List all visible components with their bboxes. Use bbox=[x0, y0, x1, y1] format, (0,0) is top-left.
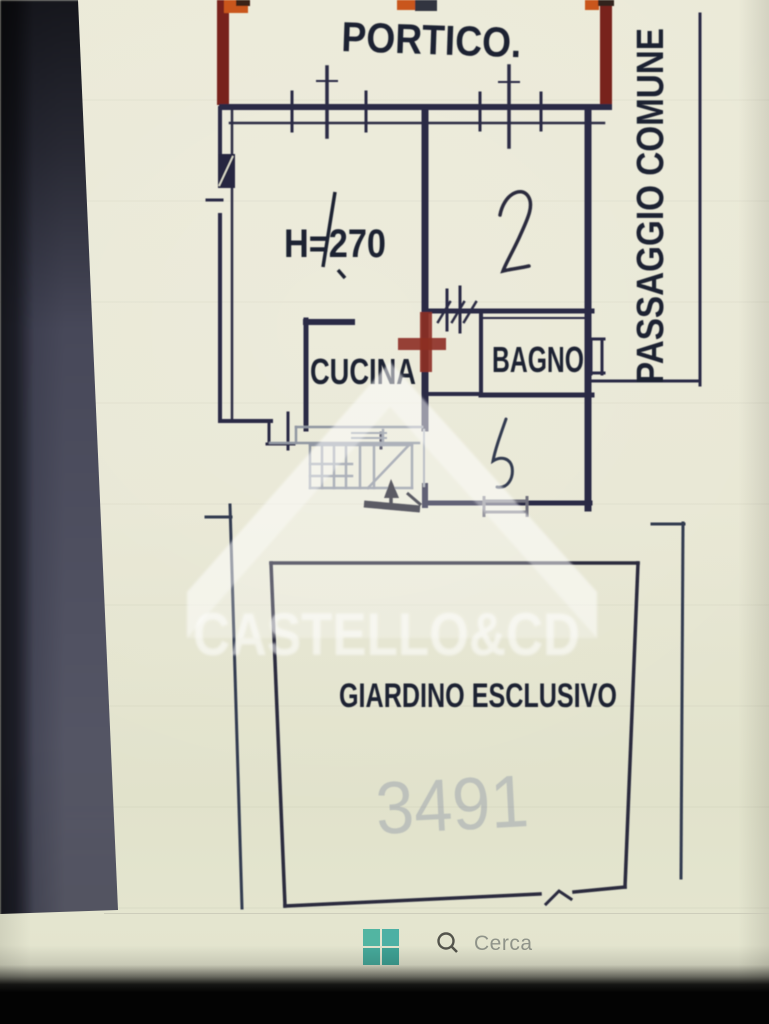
svg-text:PORTICO.: PORTICO. bbox=[341, 13, 523, 66]
svg-text:PASSAGGIO COMUNE: PASSAGGIO COMUNE bbox=[630, 28, 672, 384]
svg-text:BAGNO: BAGNO bbox=[492, 339, 584, 380]
svg-text:GIARDINO ESCLUSIVO: GIARDINO ESCLUSIVO bbox=[339, 677, 617, 715]
svg-text:3491: 3491 bbox=[373, 759, 530, 850]
svg-text:H=270: H=270 bbox=[284, 222, 386, 266]
svg-text:CASTELLO&CD: CASTELLO&CD bbox=[193, 601, 580, 668]
